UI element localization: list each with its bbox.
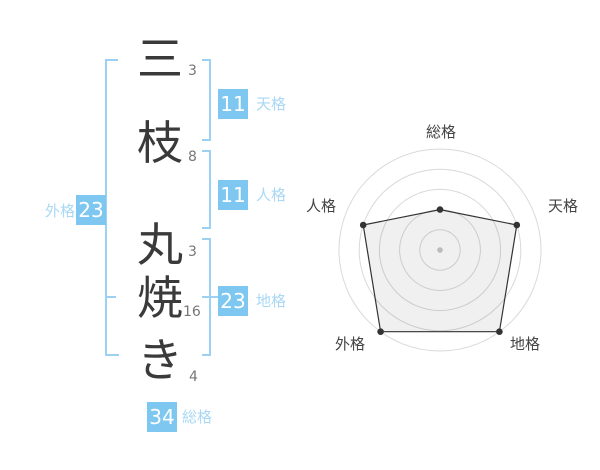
stroke-count: 4 xyxy=(189,370,198,384)
jinkaku-value-badge: 11 xyxy=(218,180,248,210)
soukaku-label: 総格 xyxy=(182,409,212,425)
radar-axis-label-tenkaku: 天格 xyxy=(548,198,578,214)
name-fortune-page: 三 枝 丸 焼 き 3 8 3 16 4 11 天格 11 人格 23 地格 外… xyxy=(0,0,600,470)
gaikaku-label: 外格 xyxy=(45,203,75,219)
chikaku-value-badge: 23 xyxy=(218,286,248,316)
radar-axis-label-jinkaku: 人格 xyxy=(306,198,336,214)
chikaku-bracket-tick xyxy=(202,296,218,298)
tenkaku-bracket-line xyxy=(209,59,211,141)
radar-axis-label-gaikaku: 外格 xyxy=(335,336,365,352)
stroke-count: 8 xyxy=(188,150,197,164)
gaikaku-bracket-tick xyxy=(105,296,116,298)
stroke-count: 3 xyxy=(188,64,197,78)
soukaku-value-badge: 34 xyxy=(147,402,177,432)
radar-axis-label-chikaku: 地格 xyxy=(510,336,540,352)
jinkaku-bracket-line xyxy=(209,150,211,229)
gaikaku-bracket-tick xyxy=(105,354,119,356)
jinkaku-bracket-tick xyxy=(202,227,211,229)
radar-axis-label-soukaku: 総格 xyxy=(425,124,457,140)
jinkaku-label: 人格 xyxy=(256,187,286,203)
gaikaku-value-badge: 23 xyxy=(76,195,106,225)
chikaku-label: 地格 xyxy=(256,293,286,309)
chikaku-bracket-tick xyxy=(202,354,211,356)
jinkaku-bracket-tick xyxy=(202,150,211,152)
tenkaku-bracket-tick xyxy=(202,59,211,61)
gaikaku-bracket-tick xyxy=(105,59,118,61)
tenkaku-value-badge: 11 xyxy=(218,89,248,119)
tenkaku-label: 天格 xyxy=(256,96,286,112)
stroke-count: 16 xyxy=(183,305,201,319)
tenkaku-bracket-tick xyxy=(202,139,211,141)
stroke-count: 3 xyxy=(188,245,197,259)
chikaku-bracket-tick xyxy=(202,238,211,240)
